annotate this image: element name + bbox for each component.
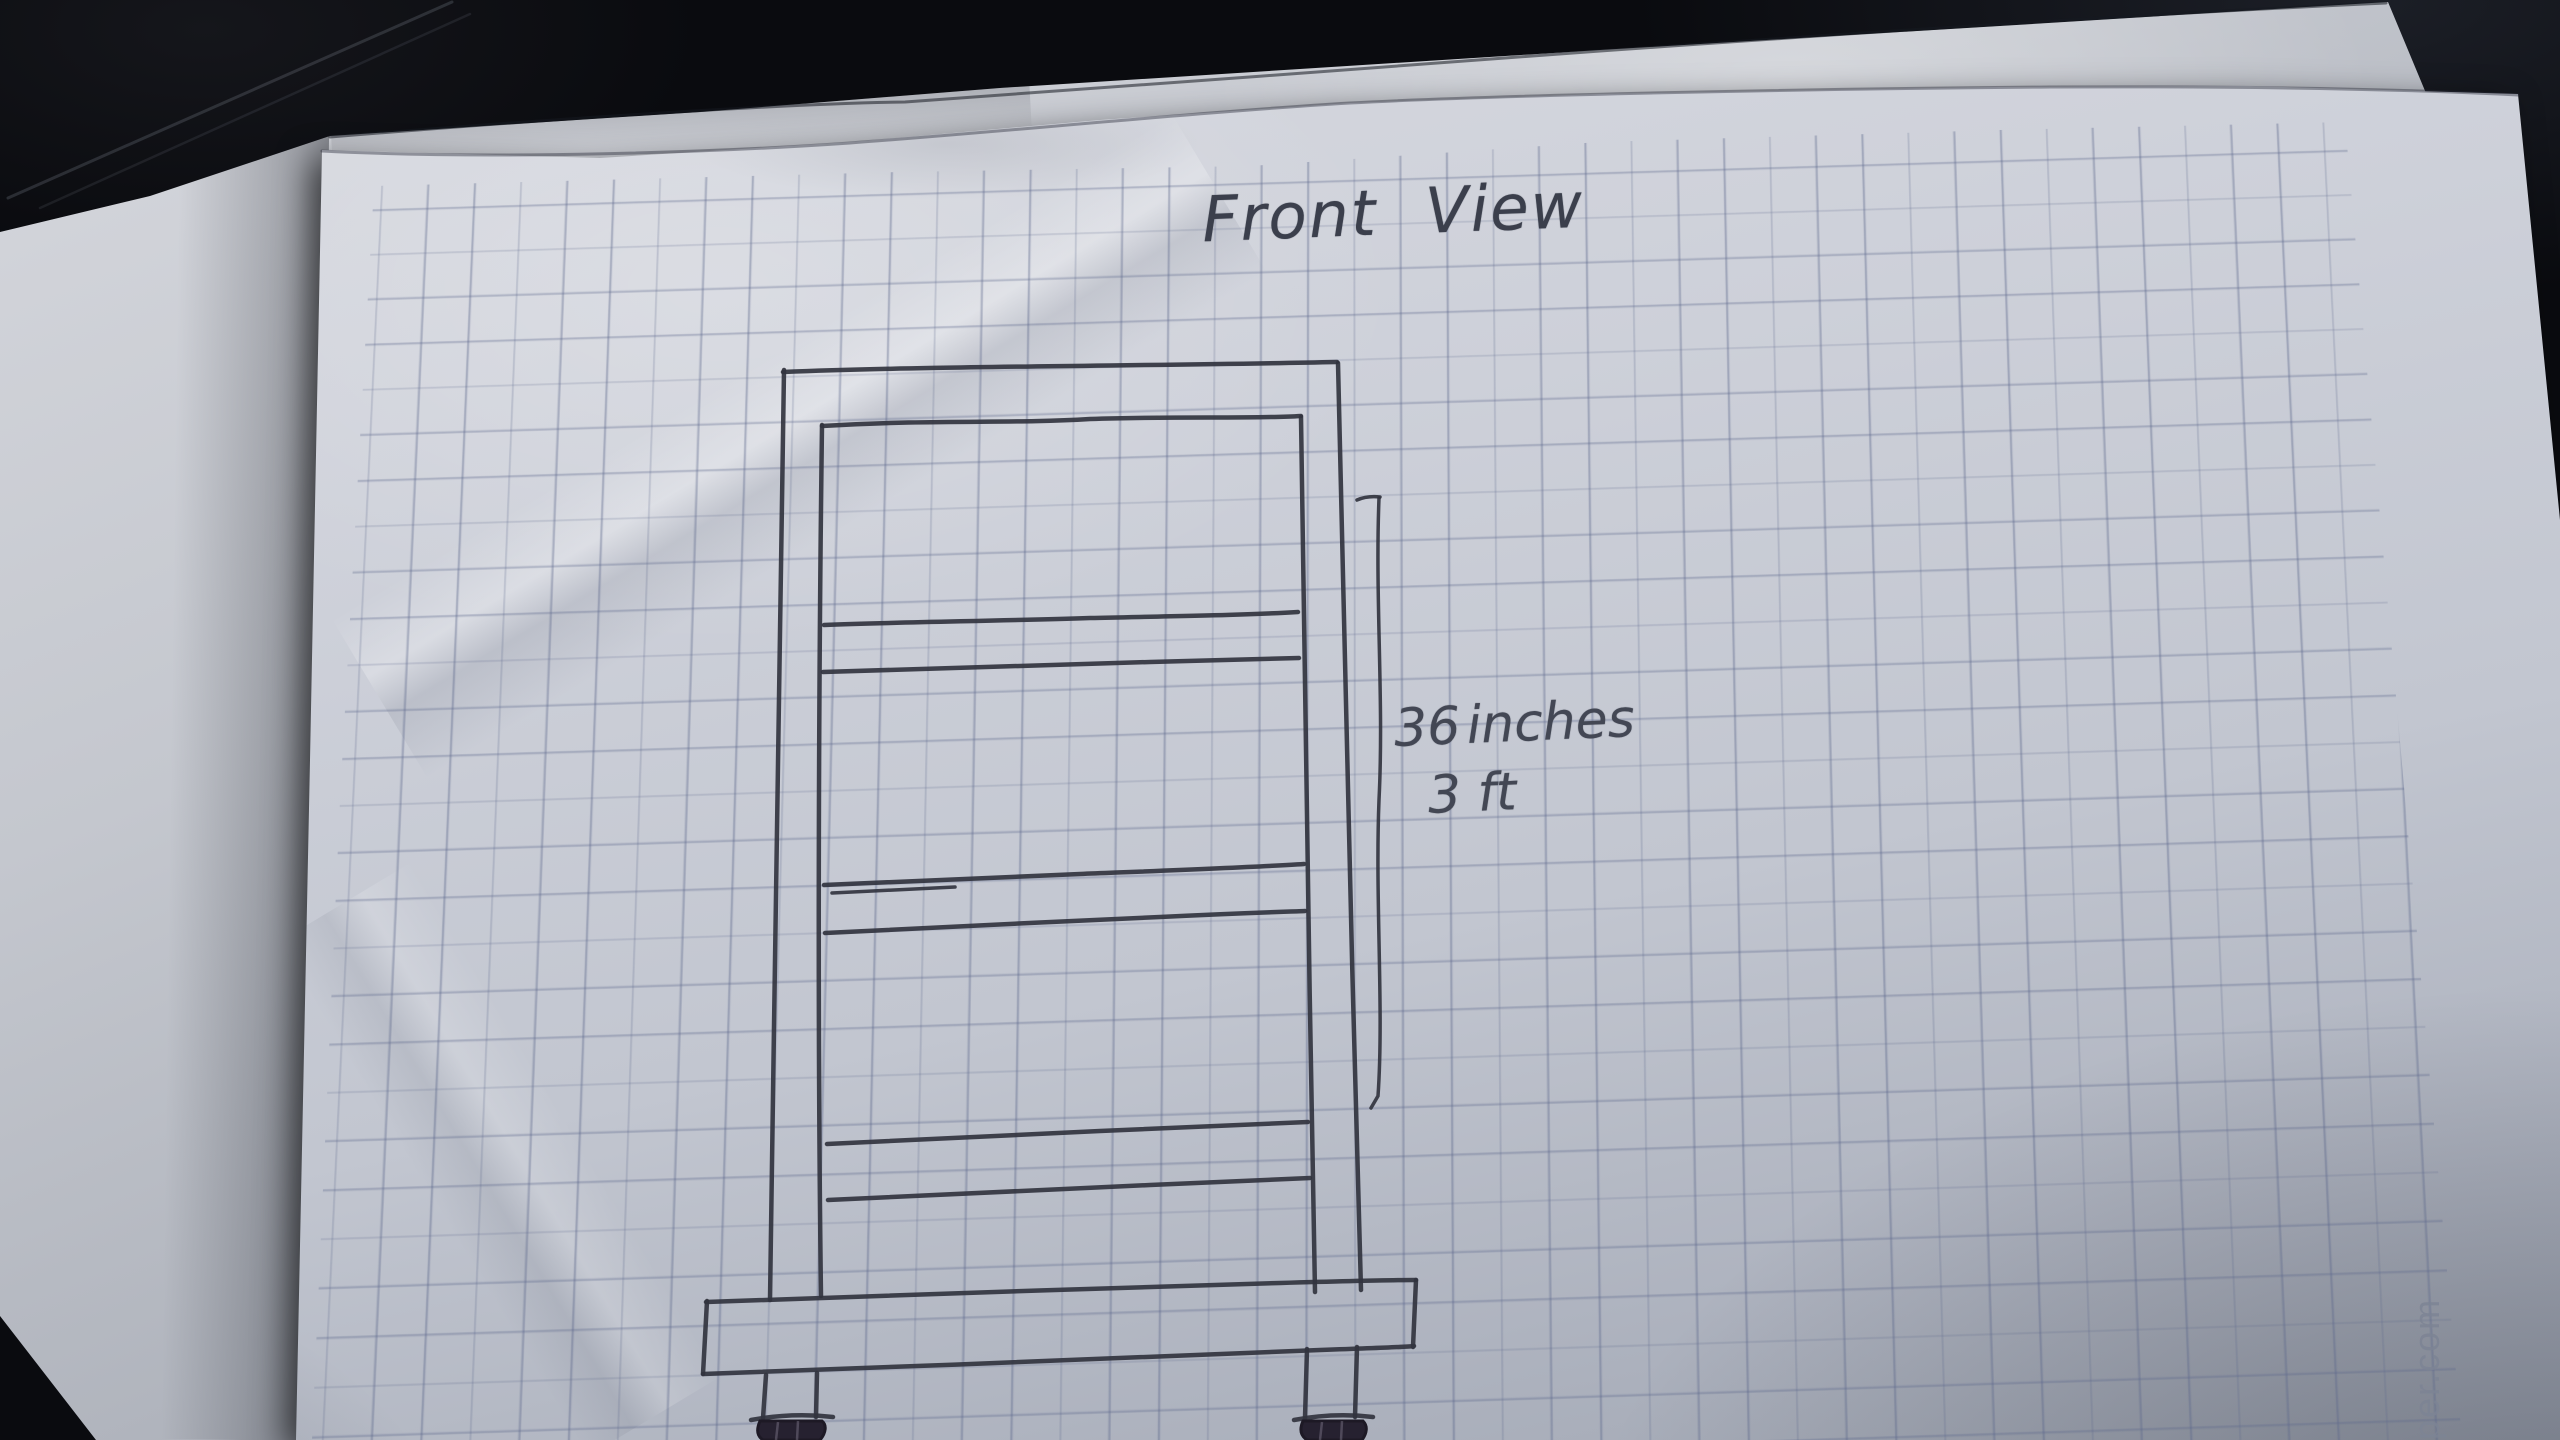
right-wheel-cap xyxy=(1294,1415,1373,1420)
main-sheet-edge xyxy=(322,87,2518,155)
base-board xyxy=(703,1280,1416,1374)
title-label: Front View xyxy=(1201,169,1586,257)
right-wheel xyxy=(1301,1421,1366,1440)
watermark: aper.com xyxy=(2406,1232,2448,1440)
dimension-label-inches: 36 inches xyxy=(1393,689,1636,759)
glare-streak xyxy=(40,14,470,208)
shelf-lines xyxy=(823,612,1310,1200)
left-wheel xyxy=(758,1421,826,1440)
glare-streak xyxy=(8,2,452,198)
shelf-frame xyxy=(770,362,1361,1300)
dimension-label-feet: 3 ft xyxy=(1427,762,1518,826)
photo-of-sketch: Front View 36 inches 3 ft aper.com xyxy=(0,0,2560,1440)
under-sheet-edge xyxy=(330,3,2386,137)
dimension-line xyxy=(1357,497,1381,1108)
left-wheel-cap xyxy=(751,1415,833,1420)
